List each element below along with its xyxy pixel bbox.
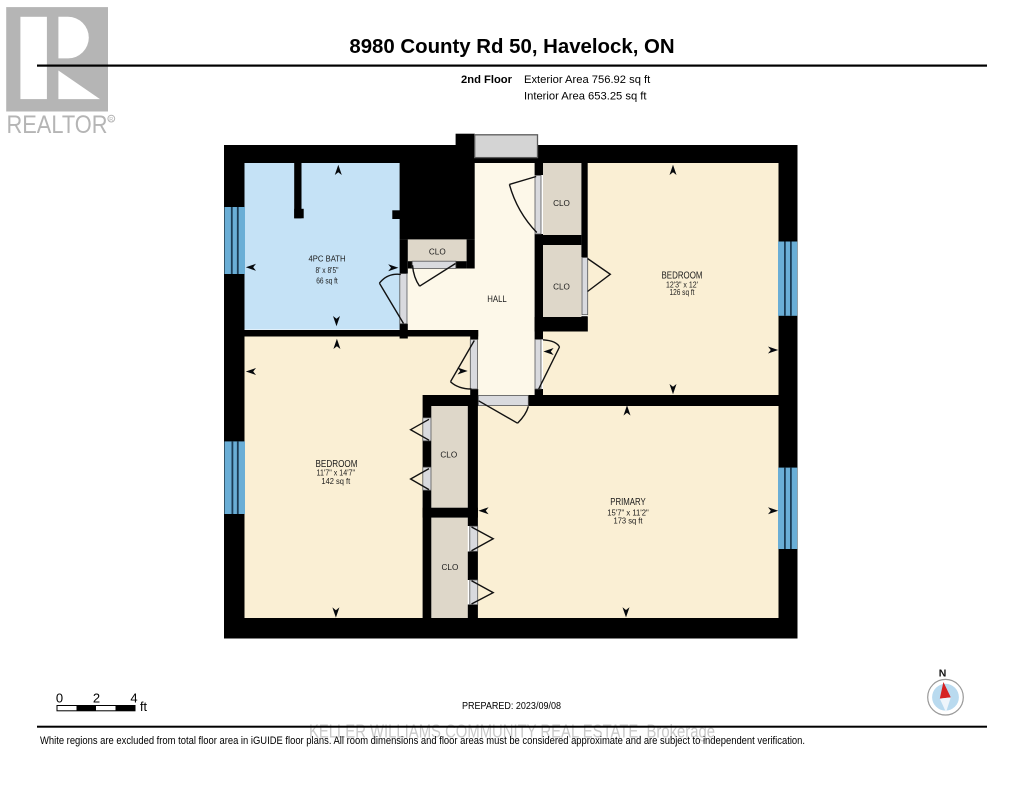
svg-text:Interior Area 653.25 sq ft: Interior Area 653.25 sq ft bbox=[524, 91, 647, 103]
svg-text:8' x 8'5": 8' x 8'5" bbox=[316, 266, 339, 275]
svg-text:4: 4 bbox=[130, 691, 137, 706]
svg-text:4PC BATH: 4PC BATH bbox=[309, 254, 346, 264]
svg-text:R: R bbox=[109, 117, 113, 123]
svg-text:Exterior Area 756.92 sq ft: Exterior Area 756.92 sq ft bbox=[524, 74, 651, 86]
svg-text:2: 2 bbox=[93, 691, 100, 706]
svg-text:N: N bbox=[939, 668, 947, 680]
svg-text:142 sq ft: 142 sq ft bbox=[321, 476, 350, 486]
svg-text:2nd Floor: 2nd Floor bbox=[461, 74, 513, 86]
svg-text:66 sq ft: 66 sq ft bbox=[316, 277, 338, 286]
svg-text:0: 0 bbox=[56, 691, 63, 706]
svg-text:ft: ft bbox=[140, 700, 147, 714]
svg-text:PREPARED: 2023/09/08: PREPARED: 2023/09/08 bbox=[462, 700, 561, 712]
svg-text:REALTOR: REALTOR bbox=[7, 111, 108, 139]
svg-text:CLO: CLO bbox=[553, 282, 570, 292]
svg-text:CLO: CLO bbox=[429, 246, 446, 256]
svg-text:White regions are excluded fro: White regions are excluded from total fl… bbox=[40, 735, 805, 747]
svg-text:CLO: CLO bbox=[440, 449, 457, 459]
svg-text:173 sq ft: 173 sq ft bbox=[614, 515, 644, 525]
svg-text:HALL: HALL bbox=[487, 294, 507, 304]
svg-text:8980 County Rd 50, Havelock, O: 8980 County Rd 50, Havelock, ON bbox=[349, 36, 674, 58]
svg-text:CLO: CLO bbox=[442, 562, 459, 572]
svg-text:CLO: CLO bbox=[553, 198, 570, 208]
svg-text:126 sq ft: 126 sq ft bbox=[670, 287, 695, 297]
